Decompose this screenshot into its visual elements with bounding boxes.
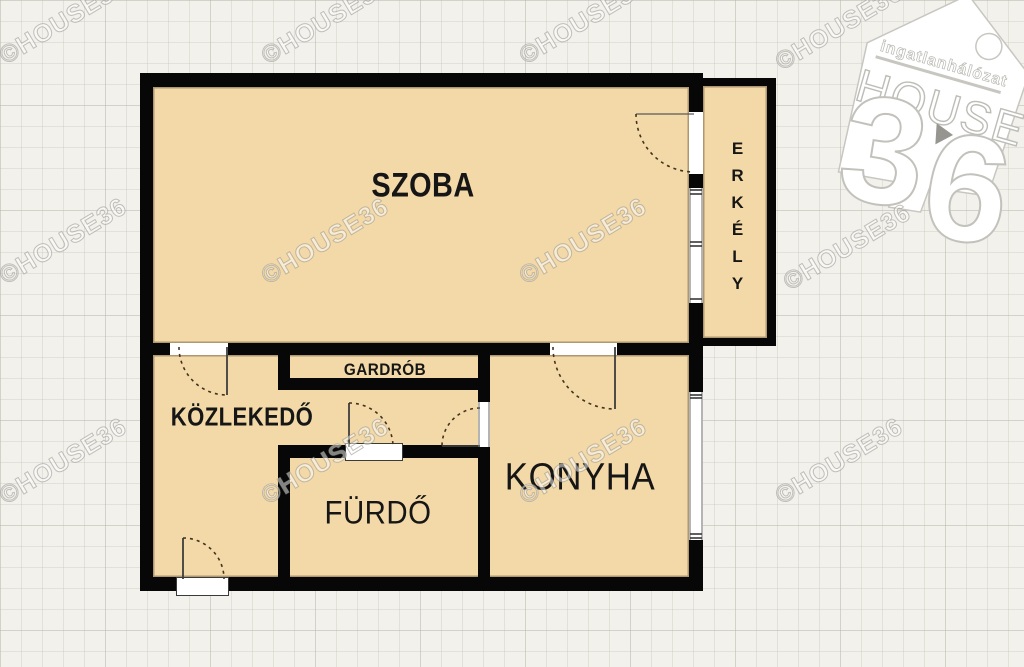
watermark: ©HOUSE36 xyxy=(0,412,132,511)
house36-logo: ingatlanhálózat HOUSE 3 6 xyxy=(838,0,1024,256)
room-label-furdo: FÜRDŐ xyxy=(325,495,432,532)
window-konyha xyxy=(689,392,703,540)
wall-furdo-left xyxy=(278,445,290,577)
door-opening-konyha-side xyxy=(478,402,490,447)
room-label-erkely: ERKÉLY xyxy=(727,139,747,301)
watermark: ©HOUSE36 xyxy=(0,192,132,291)
window-szoba xyxy=(689,188,703,303)
wall-right-c xyxy=(689,540,703,591)
wall-balcony-bottom xyxy=(697,338,776,346)
room-label-szoba: SZOBA xyxy=(371,167,474,206)
wall-left xyxy=(140,73,153,591)
watermark: ©HOUSE36 xyxy=(257,0,395,71)
room-label-gardrob: GARDRÓB xyxy=(344,360,426,380)
floor-plan-page: { "floor_plan": { "rooms": [ {"id": "szo… xyxy=(0,0,1024,667)
room-label-kozlekedo: KÖZLEKEDŐ xyxy=(171,402,314,433)
door-opening-konyha-top xyxy=(550,343,617,355)
watermark: ©HOUSE36 xyxy=(515,0,653,71)
threshold-entrance xyxy=(176,577,229,596)
watermark: ©HOUSE36 xyxy=(771,412,909,511)
wall-balcony-top xyxy=(697,78,776,86)
wall-right-b xyxy=(689,303,703,392)
door-opening-balcony xyxy=(689,112,703,174)
door-opening-szoba xyxy=(170,343,228,355)
wall-right-stub xyxy=(689,174,703,188)
watermark: ©HOUSE36 xyxy=(0,0,132,71)
wall-top xyxy=(140,73,703,87)
wall-konyha-left xyxy=(478,343,490,577)
wall-balcony-right xyxy=(767,78,776,346)
